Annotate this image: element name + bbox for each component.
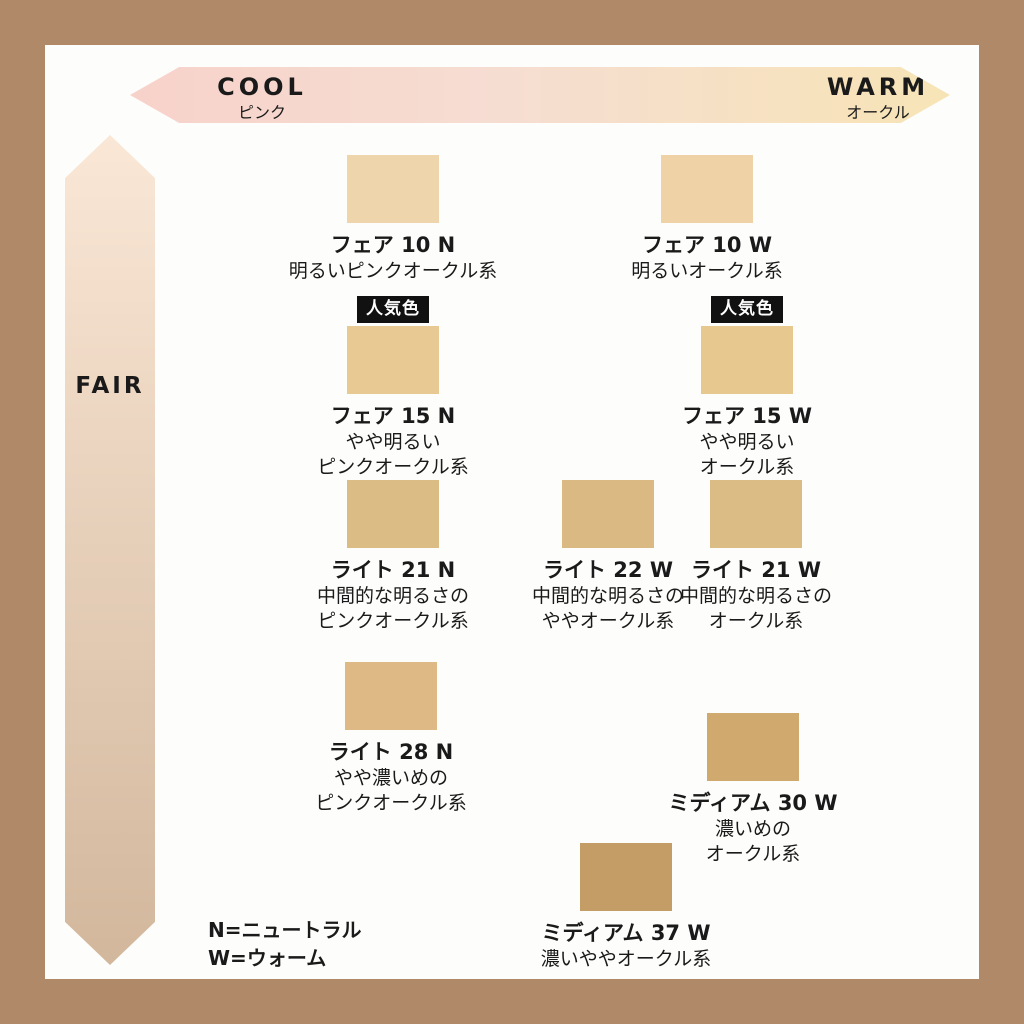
shade-name: フェア 10 N [273, 232, 513, 259]
cool-axis-sublabel: ピンク [238, 99, 286, 123]
legend: N=ニュートラル W=ウォーム [208, 916, 362, 972]
shade-swatch [347, 155, 439, 223]
shade-desc-line: ピンクオークル系 [273, 609, 513, 634]
shade-desc-line: 濃いややオークル系 [506, 947, 746, 972]
tan-axis-label: TAN [80, 983, 140, 1009]
legend-neutral: N=ニュートラル [208, 916, 362, 944]
shade-swatch [347, 480, 439, 548]
shade-name: ミディアム 37 W [506, 920, 746, 947]
shade-desc-line: オークル系 [636, 609, 876, 634]
warm-axis-sublabel: オークル [846, 99, 910, 123]
shade-name: ミディアム 30 W [633, 790, 873, 817]
shade-swatch [580, 843, 672, 911]
shade-desc-line: 明るいオークル系 [587, 259, 827, 284]
shade-item-fair-10w: フェア 10 W 明るいオークル系 [587, 155, 827, 284]
shade-desc-line: ピンクオークル系 [273, 455, 513, 480]
shade-name: ライト 28 N [271, 739, 511, 766]
cool-axis-label: COOL [217, 73, 307, 101]
shade-desc-line: 濃いめの [633, 817, 873, 842]
shade-desc-line: やや明るい [273, 430, 513, 455]
shade-desc-line: 明るいピンクオークル系 [273, 259, 513, 284]
shade-desc-line: 中間的な明るさの [273, 584, 513, 609]
shade-name: フェア 15 N [273, 403, 513, 430]
warm-axis-label: WARM [827, 73, 929, 101]
fair-axis-label: FAIR [75, 373, 144, 399]
shade-swatch [707, 713, 799, 781]
shade-item-medium-37w: ミディアム 37 W 濃いややオークル系 [506, 843, 746, 972]
popular-badge: 人気色 [357, 296, 429, 323]
shade-desc-line: やや濃いめの [271, 766, 511, 791]
shade-chart-frame: COOL ピンク WARM オークル FAIR TAN フェア 10 N 明るい… [0, 0, 1024, 1024]
shade-name: ライト 21 N [273, 557, 513, 584]
legend-warm: W=ウォーム [208, 944, 362, 972]
popular-badge: 人気色 [711, 296, 783, 323]
shade-name: フェア 15 W [627, 403, 867, 430]
shade-desc-line: ピンクオークル系 [271, 791, 511, 816]
shade-name: ライト 21 W [636, 557, 876, 584]
shade-item-light-21n: ライト 21 N 中間的な明るさの ピンクオークル系 [273, 480, 513, 634]
shade-item-light-28n: ライト 28 N やや濃いめの ピンクオークル系 [271, 662, 511, 816]
shade-item-fair-15n: 人気色 フェア 15 N やや明るい ピンクオークル系 [273, 296, 513, 480]
fair-tan-axis-arrow: FAIR TAN [65, 135, 155, 965]
shade-swatch [661, 155, 753, 223]
shade-item-fair-10n: フェア 10 N 明るいピンクオークル系 [273, 155, 513, 284]
shade-item-light-21w: ライト 21 W 中間的な明るさの オークル系 [636, 480, 876, 634]
shade-name: フェア 10 W [587, 232, 827, 259]
shade-swatch [701, 326, 793, 394]
shade-swatch [345, 662, 437, 730]
shade-desc-line: オークル系 [627, 455, 867, 480]
shade-swatch [347, 326, 439, 394]
shade-desc-line: やや明るい [627, 430, 867, 455]
shade-item-fair-15w: 人気色 フェア 15 W やや明るい オークル系 [627, 296, 867, 480]
shade-swatch [710, 480, 802, 548]
cool-warm-axis-arrow: COOL ピンク WARM オークル [130, 67, 950, 123]
shade-desc-line: 中間的な明るさの [636, 584, 876, 609]
shade-chart-canvas: COOL ピンク WARM オークル FAIR TAN フェア 10 N 明るい… [0, 0, 1024, 1024]
